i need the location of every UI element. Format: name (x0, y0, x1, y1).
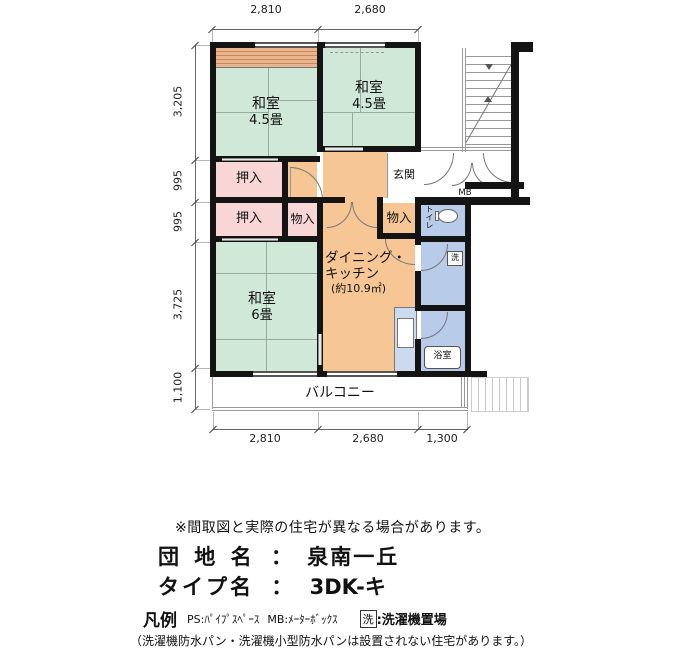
dim-bottom-2: 2,680 (338, 432, 398, 445)
dim-ext (212, 29, 213, 42)
wall (317, 48, 323, 152)
floor-plan-sheet: 和室 4.5畳 和室 4.5畳 和室 6畳 ダイニング・ キッチン (約10.9… (0, 0, 700, 650)
dim-bottom-3: 1,300 (412, 432, 472, 445)
wall (415, 48, 421, 146)
estate-name-value: 泉南一丘 (307, 545, 399, 569)
dim-ext (418, 29, 419, 42)
type-name-label: タイプ名 (158, 575, 254, 599)
sliding-door (325, 147, 363, 151)
room-washitsu-1-label: 和室 4.5畳 (226, 96, 306, 128)
wall (210, 371, 253, 377)
dim-top-1: 2,810 (236, 3, 296, 16)
stair-tread (466, 104, 513, 105)
room-size: 4.5畳 (226, 113, 306, 129)
room-name: 和室 (222, 291, 302, 308)
dim-ext (196, 409, 210, 410)
kitchen-sink (397, 318, 414, 348)
estate-name-colon: ： (271, 545, 292, 569)
dim-left-1: 3,205 (172, 74, 185, 130)
wall (317, 371, 327, 377)
wall (511, 42, 533, 52)
dim-ext (196, 45, 210, 46)
balcony-edge (212, 377, 213, 409)
toilet-tank-icon (435, 211, 439, 221)
dim-left-5: 1,100 (172, 360, 185, 416)
stair-tread (466, 120, 513, 121)
oshiire-2-label: 押入 (218, 211, 280, 227)
neighbor-balcony-hatch (471, 377, 529, 412)
dk-line2: キッチン (325, 266, 417, 282)
room-washitsu-3-label: 和室 6畳 (222, 291, 302, 323)
balcony-rail (212, 407, 468, 408)
stair-tread (466, 136, 513, 137)
wall (210, 42, 255, 48)
room-size: 6畳 (222, 308, 302, 324)
stair-arrow-up (484, 96, 492, 102)
oshiire-1-label: 押入 (218, 171, 280, 187)
closet-door (222, 158, 278, 161)
dk-label: ダイニング・ キッチン (約10.9㎡) (325, 250, 417, 296)
room-washitsu-2-label: 和室 4.5畳 (329, 80, 409, 112)
wall (511, 46, 519, 205)
wall (465, 203, 471, 377)
legend-footnote: （洗濯機防水パン・洗濯機小型防水パンは設置されない住宅があります。） (130, 632, 532, 649)
type-name-colon: ： (271, 575, 292, 599)
window (327, 371, 397, 377)
stair-tread (466, 88, 513, 89)
room-washitsu-1-closet-band (216, 48, 317, 68)
wall (282, 156, 288, 203)
dim-ext (196, 242, 210, 243)
monoire-2-label: 物入 (381, 210, 417, 225)
toilet-icon (438, 209, 458, 223)
dim-ext (196, 160, 210, 161)
dim-ext (318, 29, 319, 42)
dim-line-bottom (213, 429, 468, 430)
legend-laundry-symbol: 洗 (360, 610, 377, 628)
legend-row: 凡例 PS:ﾊﾟｲﾌﾟｽﾍﾟｰｽ MB:ﾒｰﾀｰﾎﾞｯｸｽ 洗 :洗濯機置場 (143, 606, 447, 631)
stair-tread (466, 80, 513, 81)
legend-title: 凡例 (143, 606, 177, 631)
dim-top-2: 2,680 (340, 3, 400, 16)
balcony-label: バルコニー (295, 385, 385, 402)
wall (415, 236, 471, 242)
stair-tread (466, 56, 513, 57)
closet-door (222, 238, 278, 241)
window-inner-dash (330, 52, 384, 54)
genkan-label: 玄関 (390, 168, 418, 181)
type-name-value: 3DK-キ (310, 575, 386, 599)
sliding-door (318, 334, 322, 365)
balcony-divider (461, 377, 462, 408)
wall (210, 42, 216, 377)
wall (210, 197, 345, 203)
room-size: 4.5畳 (329, 97, 409, 113)
toilet-label: トイレ (423, 205, 433, 229)
dim-left-3: 995 (172, 194, 185, 250)
dim-ext (196, 202, 210, 203)
legend-mb: MB:ﾒｰﾀｰﾎﾞｯｸｽ (267, 611, 337, 627)
tatami-line (352, 112, 353, 146)
balcony-edge (467, 377, 468, 409)
dim-bottom-1: 2,810 (235, 432, 295, 445)
room-name: 和室 (226, 96, 306, 113)
stair-tread (466, 144, 513, 145)
monoire-1-label: 物入 (286, 212, 319, 226)
dk-line1: ダイニング・ (325, 250, 417, 266)
type-name-row: タイプ名 ： 3DK-キ (158, 571, 386, 601)
meter-box-label: MB (453, 188, 477, 198)
stair-tread (466, 112, 513, 113)
laundry-label: 洗 (447, 253, 463, 263)
window (253, 371, 317, 377)
tatami-line (216, 273, 317, 274)
window (255, 42, 317, 48)
stair-arrow-down (485, 64, 493, 70)
balcony-divider (464, 377, 465, 408)
wall (415, 305, 471, 311)
disclaimer-note: ※間取図と実際の住宅が異なる場合があります。 (175, 517, 490, 537)
room-name: 和室 (329, 80, 409, 97)
dim-left-4: 3,725 (172, 277, 185, 333)
stair-side-line (462, 48, 463, 152)
door-arc-corridor (290, 167, 323, 200)
tatami-line (216, 339, 317, 340)
door-arc-entrance (424, 153, 454, 185)
dim-ext (196, 368, 210, 369)
balcony-rail (212, 410, 468, 411)
wall (397, 371, 487, 377)
genkan-step-line (387, 153, 388, 198)
legend-laundry-text: :洗濯機置場 (377, 609, 447, 628)
estate-name-row: 団 地 名 ： 泉南一丘 (158, 541, 399, 571)
bath-label: 浴室 (424, 351, 461, 362)
estate-name-label: 団 地 名 (158, 545, 256, 569)
window (325, 42, 385, 48)
corridor-floor2 (323, 152, 387, 198)
legend-ps: PS:ﾊﾟｲﾌﾟｽﾍﾟｰｽ (187, 611, 259, 627)
dim-line-left (195, 45, 196, 409)
dk-line3: (約10.9㎡) (325, 282, 417, 295)
